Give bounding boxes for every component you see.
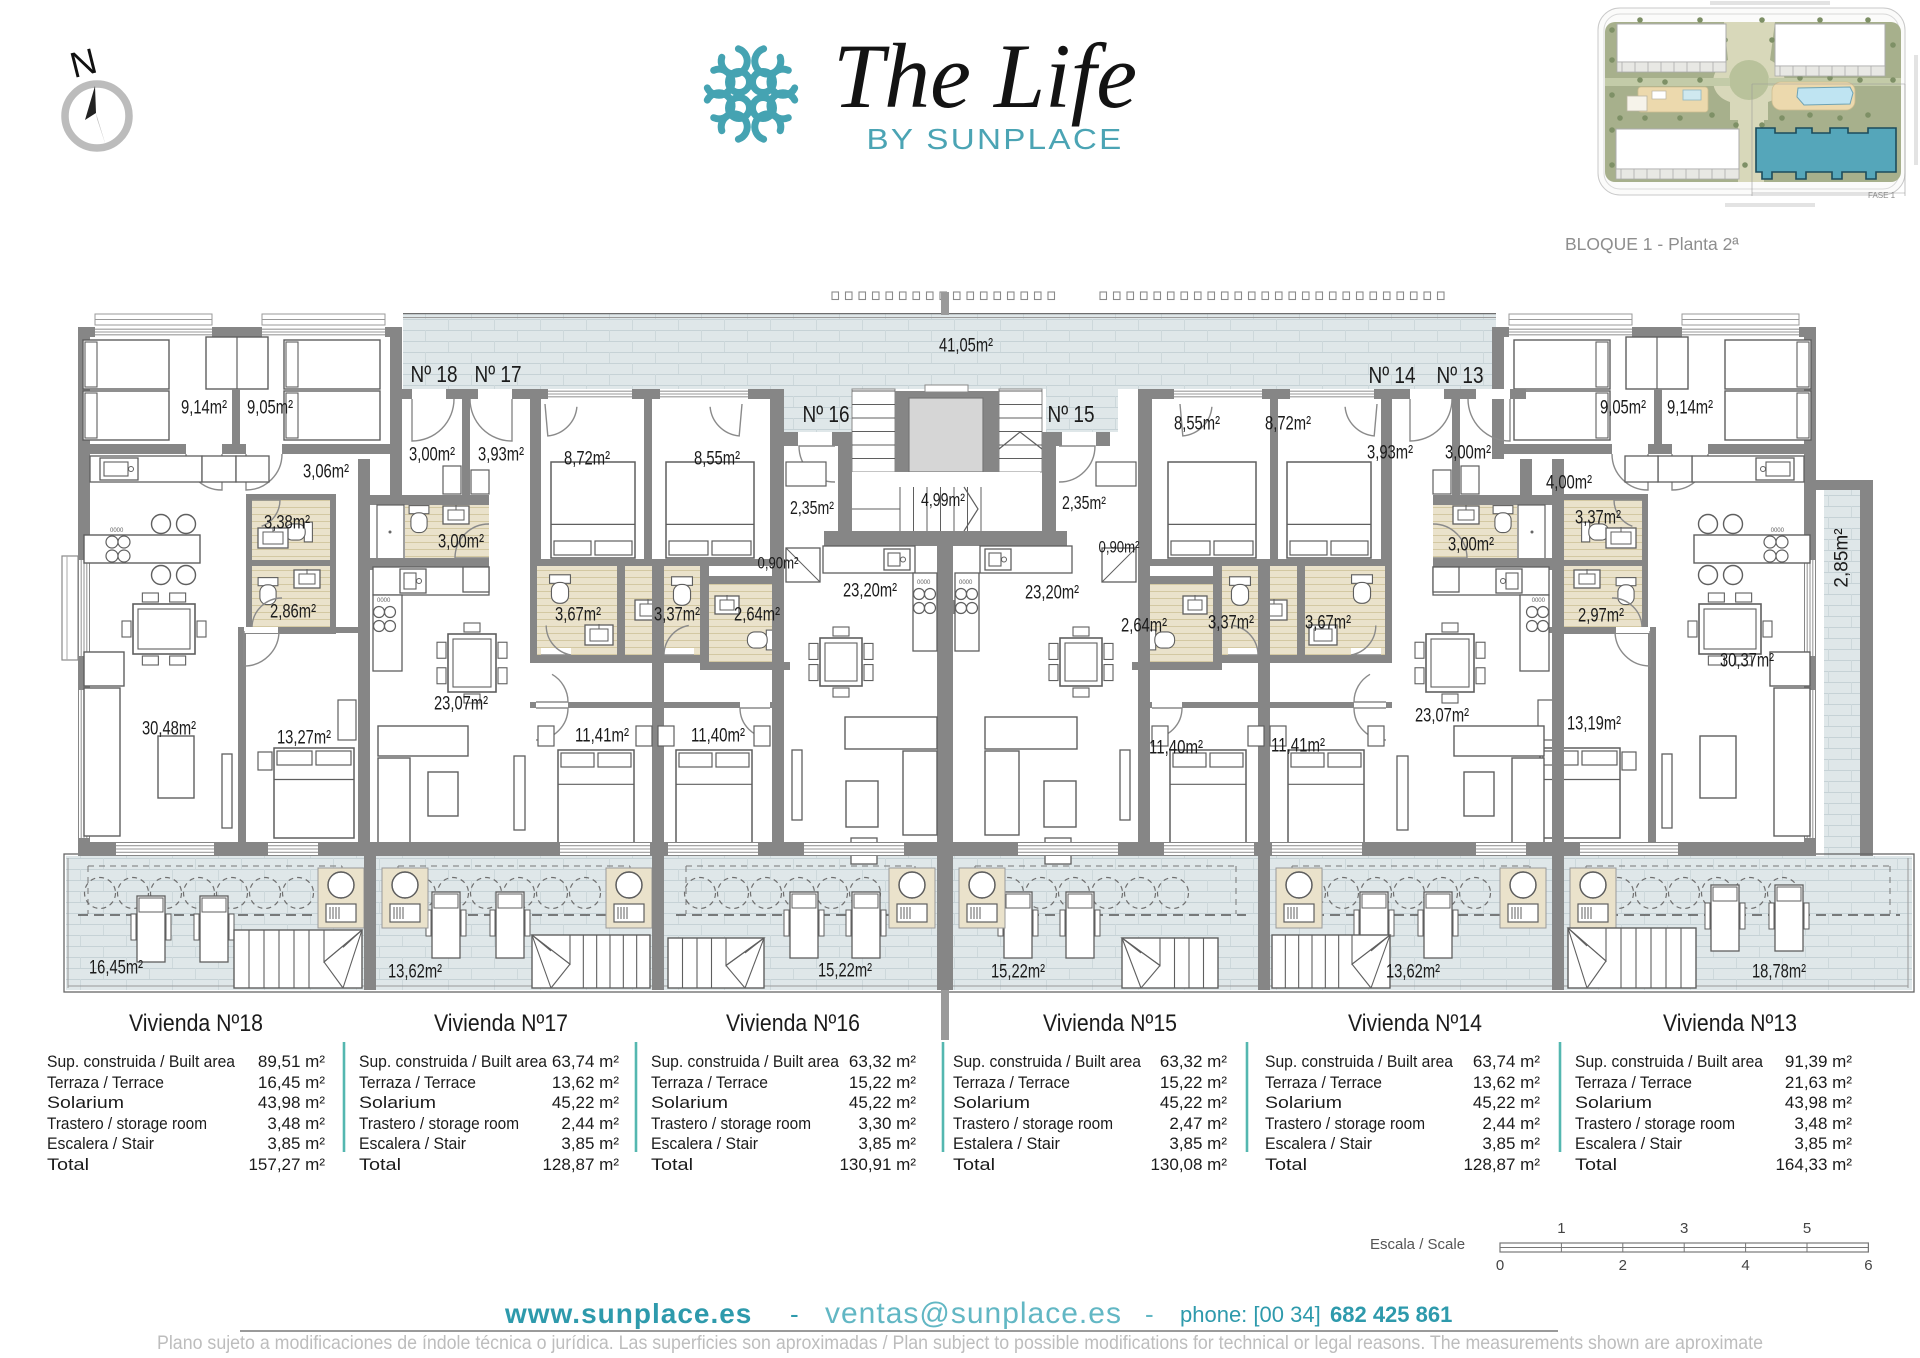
svg-text:2,64m²: 2,64m² (1121, 616, 1167, 637)
svg-text:23,07m²: 23,07m² (1415, 706, 1469, 727)
svg-text:0000: 0000 (959, 580, 973, 586)
svg-text:ventas@sunplace.es: ventas@sunplace.es (825, 1297, 1122, 1330)
svg-text:8,72m²: 8,72m² (1265, 414, 1311, 435)
svg-text:Nº 17: Nº 17 (475, 361, 522, 387)
svg-text:3: 3 (1680, 1220, 1688, 1237)
svg-text:13,19m²: 13,19m² (1567, 714, 1621, 735)
svg-text:11,40m²: 11,40m² (691, 726, 745, 747)
svg-text:63,74 m²: 63,74 m² (1473, 1052, 1540, 1071)
svg-text:Plano sujeto a modificaciones: Plano sujeto a modificaciones de índole … (157, 1333, 1763, 1354)
svg-text:6: 6 (1864, 1257, 1872, 1274)
svg-text:8,55m²: 8,55m² (694, 449, 740, 470)
svg-text:Escala / Scale: Escala / Scale (1370, 1236, 1465, 1253)
svg-text:2,86m²: 2,86m² (270, 602, 316, 623)
svg-text:Total: Total (1265, 1155, 1307, 1174)
svg-text:0000: 0000 (110, 528, 124, 534)
svg-text:phone: [00 34]: phone: [00 34] (1180, 1302, 1321, 1327)
svg-text:13,62m²: 13,62m² (388, 962, 442, 983)
svg-text:15,22m²: 15,22m² (818, 961, 872, 982)
svg-text:13,27m²: 13,27m² (277, 728, 331, 749)
svg-text:3,93m²: 3,93m² (478, 445, 524, 466)
svg-text:3,37m²: 3,37m² (1208, 613, 1254, 634)
svg-text:0: 0 (1496, 1257, 1504, 1274)
svg-text:3,67m²: 3,67m² (555, 605, 601, 626)
svg-text:2,35m²: 2,35m² (1062, 493, 1106, 513)
svg-text:8,72m²: 8,72m² (564, 449, 610, 470)
svg-text:The Life: The Life (833, 25, 1137, 127)
svg-text:Total: Total (47, 1155, 89, 1174)
svg-text:BY SUNPLACE: BY SUNPLACE (867, 124, 1124, 156)
svg-text:2,35m²: 2,35m² (790, 498, 834, 518)
svg-text:13,62m²: 13,62m² (1386, 962, 1440, 983)
svg-text:www.sunplace.es: www.sunplace.es (504, 1298, 752, 1329)
svg-text:4: 4 (1741, 1257, 1749, 1274)
svg-text:30,37m²: 30,37m² (1720, 651, 1774, 672)
svg-text:15,22m²: 15,22m² (991, 962, 1045, 983)
svg-text:45,22 m²: 45,22 m² (1473, 1093, 1540, 1112)
svg-text:21,63 m²: 21,63 m² (1785, 1073, 1852, 1092)
svg-text:682 425 861: 682 425 861 (1330, 1302, 1452, 1327)
svg-text:2,64m²: 2,64m² (734, 605, 780, 626)
svg-text:1: 1 (1557, 1220, 1565, 1237)
svg-text:128,87 m²: 128,87 m² (542, 1155, 619, 1174)
svg-text:13,62 m²: 13,62 m² (552, 1073, 619, 1092)
svg-text:3,37m²: 3,37m² (654, 605, 700, 626)
svg-text:2,97m²: 2,97m² (1578, 606, 1624, 627)
svg-text:4,00m²: 4,00m² (1546, 473, 1592, 494)
svg-text:Sup. construida / Built area: Sup. construida / Built area (953, 1052, 1141, 1071)
svg-text:Terraza / Terrace: Terraza / Terrace (651, 1073, 768, 1092)
svg-text:23,07m²: 23,07m² (434, 694, 488, 715)
svg-text:3,38m²: 3,38m² (264, 513, 310, 534)
svg-text:0000: 0000 (917, 580, 931, 586)
svg-text:Vivienda Nº13: Vivienda Nº13 (1663, 1010, 1797, 1037)
svg-text:Sup. construida / Built area: Sup. construida / Built area (47, 1052, 235, 1071)
svg-text:9,14m²: 9,14m² (1667, 398, 1713, 419)
svg-text:16,45 m²: 16,45 m² (258, 1073, 325, 1092)
svg-text:Solarium: Solarium (47, 1093, 124, 1112)
svg-text:Trastero / storage room: Trastero / storage room (1575, 1114, 1735, 1133)
svg-text:3,00m²: 3,00m² (438, 532, 484, 553)
svg-text:3,48 m²: 3,48 m² (267, 1114, 325, 1133)
svg-text:45,22 m²: 45,22 m² (849, 1093, 916, 1112)
svg-text:Estalera / Stair: Estalera / Stair (953, 1134, 1060, 1153)
svg-text:Terraza / Terrace: Terraza / Terrace (47, 1073, 164, 1092)
svg-text:3,00m²: 3,00m² (1448, 535, 1494, 556)
svg-text:0,90m²: 0,90m² (1099, 538, 1140, 557)
svg-text:45,22 m²: 45,22 m² (552, 1093, 619, 1112)
svg-text:Nº 18: Nº 18 (411, 361, 458, 387)
svg-text:11,41m²: 11,41m² (575, 726, 629, 747)
svg-text:23,20m²: 23,20m² (843, 581, 897, 602)
svg-text:11,40m²: 11,40m² (1149, 738, 1203, 759)
svg-text:2: 2 (1619, 1257, 1627, 1274)
svg-text:89,51 m²: 89,51 m² (258, 1052, 325, 1071)
svg-text:Sup. construida / Built area: Sup. construida / Built area (1265, 1052, 1453, 1071)
svg-text:Escalera / Stair: Escalera / Stair (651, 1134, 758, 1153)
svg-text:Nº 15: Nº 15 (1048, 401, 1095, 427)
svg-text:3,85 m²: 3,85 m² (858, 1134, 916, 1153)
svg-text:3,85 m²: 3,85 m² (1482, 1134, 1540, 1153)
svg-text:9,14m²: 9,14m² (181, 398, 227, 419)
svg-text:63,32 m²: 63,32 m² (1160, 1052, 1227, 1071)
svg-text:Vivienda Nº17: Vivienda Nº17 (434, 1010, 568, 1037)
svg-text:3,93m²: 3,93m² (1367, 443, 1413, 464)
svg-text:Total: Total (359, 1155, 401, 1174)
svg-text:3,85 m²: 3,85 m² (1169, 1134, 1227, 1153)
svg-text:23,20m²: 23,20m² (1025, 583, 1079, 604)
svg-text:2,85m²: 2,85m² (1832, 528, 1853, 587)
svg-text:Vivienda Nº16: Vivienda Nº16 (726, 1010, 860, 1037)
svg-text:Solarium: Solarium (1265, 1093, 1342, 1112)
svg-text:Solarium: Solarium (359, 1093, 436, 1112)
svg-text:41,05m²: 41,05m² (939, 336, 993, 357)
svg-text:164,33 m²: 164,33 m² (1775, 1155, 1852, 1174)
svg-text:3,06m²: 3,06m² (303, 462, 349, 483)
svg-text:Trastero / storage room: Trastero / storage room (651, 1114, 811, 1133)
svg-text:0000: 0000 (1770, 528, 1784, 534)
svg-text:0,90m²: 0,90m² (758, 554, 799, 573)
svg-text:Trastero / storage room: Trastero / storage room (359, 1114, 519, 1133)
svg-text:Trastero / storage room: Trastero / storage room (1265, 1114, 1425, 1133)
svg-text:Nº 16: Nº 16 (803, 401, 850, 427)
svg-text:3,48 m²: 3,48 m² (1794, 1114, 1852, 1133)
svg-text:Solarium: Solarium (953, 1093, 1030, 1112)
svg-text:9,05m²: 9,05m² (247, 398, 293, 419)
svg-text:3,37m²: 3,37m² (1575, 508, 1621, 529)
svg-text:2,44 m²: 2,44 m² (561, 1114, 619, 1133)
svg-text:16,45m²: 16,45m² (89, 958, 143, 979)
svg-text:30,48m²: 30,48m² (142, 719, 196, 740)
svg-text:Escalera / Stair: Escalera / Stair (1575, 1134, 1682, 1153)
svg-text:Escalera / Stair: Escalera / Stair (47, 1134, 154, 1153)
svg-text:Total: Total (953, 1155, 995, 1174)
svg-text:2,44 m²: 2,44 m² (1482, 1114, 1540, 1133)
svg-text:Terraza / Terrace: Terraza / Terrace (1575, 1073, 1692, 1092)
svg-text:5: 5 (1803, 1220, 1811, 1237)
svg-text:128,87 m²: 128,87 m² (1463, 1155, 1540, 1174)
svg-text:Trastero / storage room: Trastero / storage room (47, 1114, 207, 1133)
svg-text:2,47 m²: 2,47 m² (1169, 1114, 1227, 1133)
svg-text:Vivienda Nº14: Vivienda Nº14 (1348, 1010, 1482, 1037)
svg-text:Sup. construida / Built area: Sup. construida / Built area (1575, 1052, 1763, 1071)
svg-text:63,74 m²: 63,74 m² (552, 1052, 619, 1071)
svg-text:3,00m²: 3,00m² (409, 445, 455, 466)
svg-text:Escalera / Stair: Escalera / Stair (1265, 1134, 1372, 1153)
svg-text:13,62 m²: 13,62 m² (1473, 1073, 1540, 1092)
svg-text:11,41m²: 11,41m² (1271, 736, 1325, 757)
svg-text:Vivienda Nº15: Vivienda Nº15 (1043, 1010, 1177, 1037)
svg-text:Total: Total (651, 1155, 693, 1174)
svg-text:43,98 m²: 43,98 m² (258, 1093, 325, 1112)
svg-text:Terraza / Terrace: Terraza / Terrace (1265, 1073, 1382, 1092)
svg-text:Solarium: Solarium (1575, 1093, 1652, 1112)
svg-text:Nº 13: Nº 13 (1437, 362, 1484, 388)
svg-text:3,30 m²: 3,30 m² (858, 1114, 916, 1133)
svg-text:3,67m²: 3,67m² (1305, 613, 1351, 634)
svg-text:Solarium: Solarium (651, 1093, 728, 1112)
svg-text:45,22 m²: 45,22 m² (1160, 1093, 1227, 1112)
svg-text:8,55m²: 8,55m² (1174, 414, 1220, 435)
svg-text:91,39 m²: 91,39 m² (1785, 1052, 1852, 1071)
svg-text:63,32 m²: 63,32 m² (849, 1052, 916, 1071)
svg-text:Sup. construida / Built area: Sup. construida / Built area (359, 1052, 547, 1071)
svg-text:FASE 1: FASE 1 (1868, 191, 1896, 200)
svg-text:Terraza / Terrace: Terraza / Terrace (953, 1073, 1070, 1092)
svg-text:130,08 m²: 130,08 m² (1150, 1155, 1227, 1174)
svg-text:0000: 0000 (1531, 598, 1545, 604)
svg-text:-: - (1145, 1299, 1154, 1329)
svg-text:18,78m²: 18,78m² (1752, 962, 1806, 983)
svg-text:BLOQUE 1 - Planta 2ª: BLOQUE 1 - Planta 2ª (1565, 234, 1739, 254)
svg-text:Vivienda Nº18: Vivienda Nº18 (129, 1010, 263, 1037)
svg-text:3,85 m²: 3,85 m² (561, 1134, 619, 1153)
svg-text:Sup. construida / Built area: Sup. construida / Built area (651, 1052, 839, 1071)
svg-text:Total: Total (1575, 1155, 1617, 1174)
svg-text:15,22 m²: 15,22 m² (849, 1073, 916, 1092)
svg-text:130,91 m²: 130,91 m² (839, 1155, 916, 1174)
svg-text:Terraza / Terrace: Terraza / Terrace (359, 1073, 476, 1092)
svg-text:9,05m²: 9,05m² (1600, 398, 1646, 419)
svg-text:3,85 m²: 3,85 m² (1794, 1134, 1852, 1153)
svg-text:Nº 14: Nº 14 (1369, 362, 1416, 388)
svg-text:3,85 m²: 3,85 m² (267, 1134, 325, 1153)
svg-text:43,98 m²: 43,98 m² (1785, 1093, 1852, 1112)
svg-text:-: - (790, 1299, 799, 1329)
svg-text:Trastero / storage room: Trastero / storage room (953, 1114, 1113, 1133)
svg-text:0000: 0000 (377, 598, 391, 604)
svg-text:3,00m²: 3,00m² (1445, 443, 1491, 464)
svg-text:Escalera / Stair: Escalera / Stair (359, 1134, 466, 1153)
svg-text:15,22 m²: 15,22 m² (1160, 1073, 1227, 1092)
svg-text:4,99m²: 4,99m² (921, 490, 965, 510)
svg-text:157,27 m²: 157,27 m² (248, 1155, 325, 1174)
